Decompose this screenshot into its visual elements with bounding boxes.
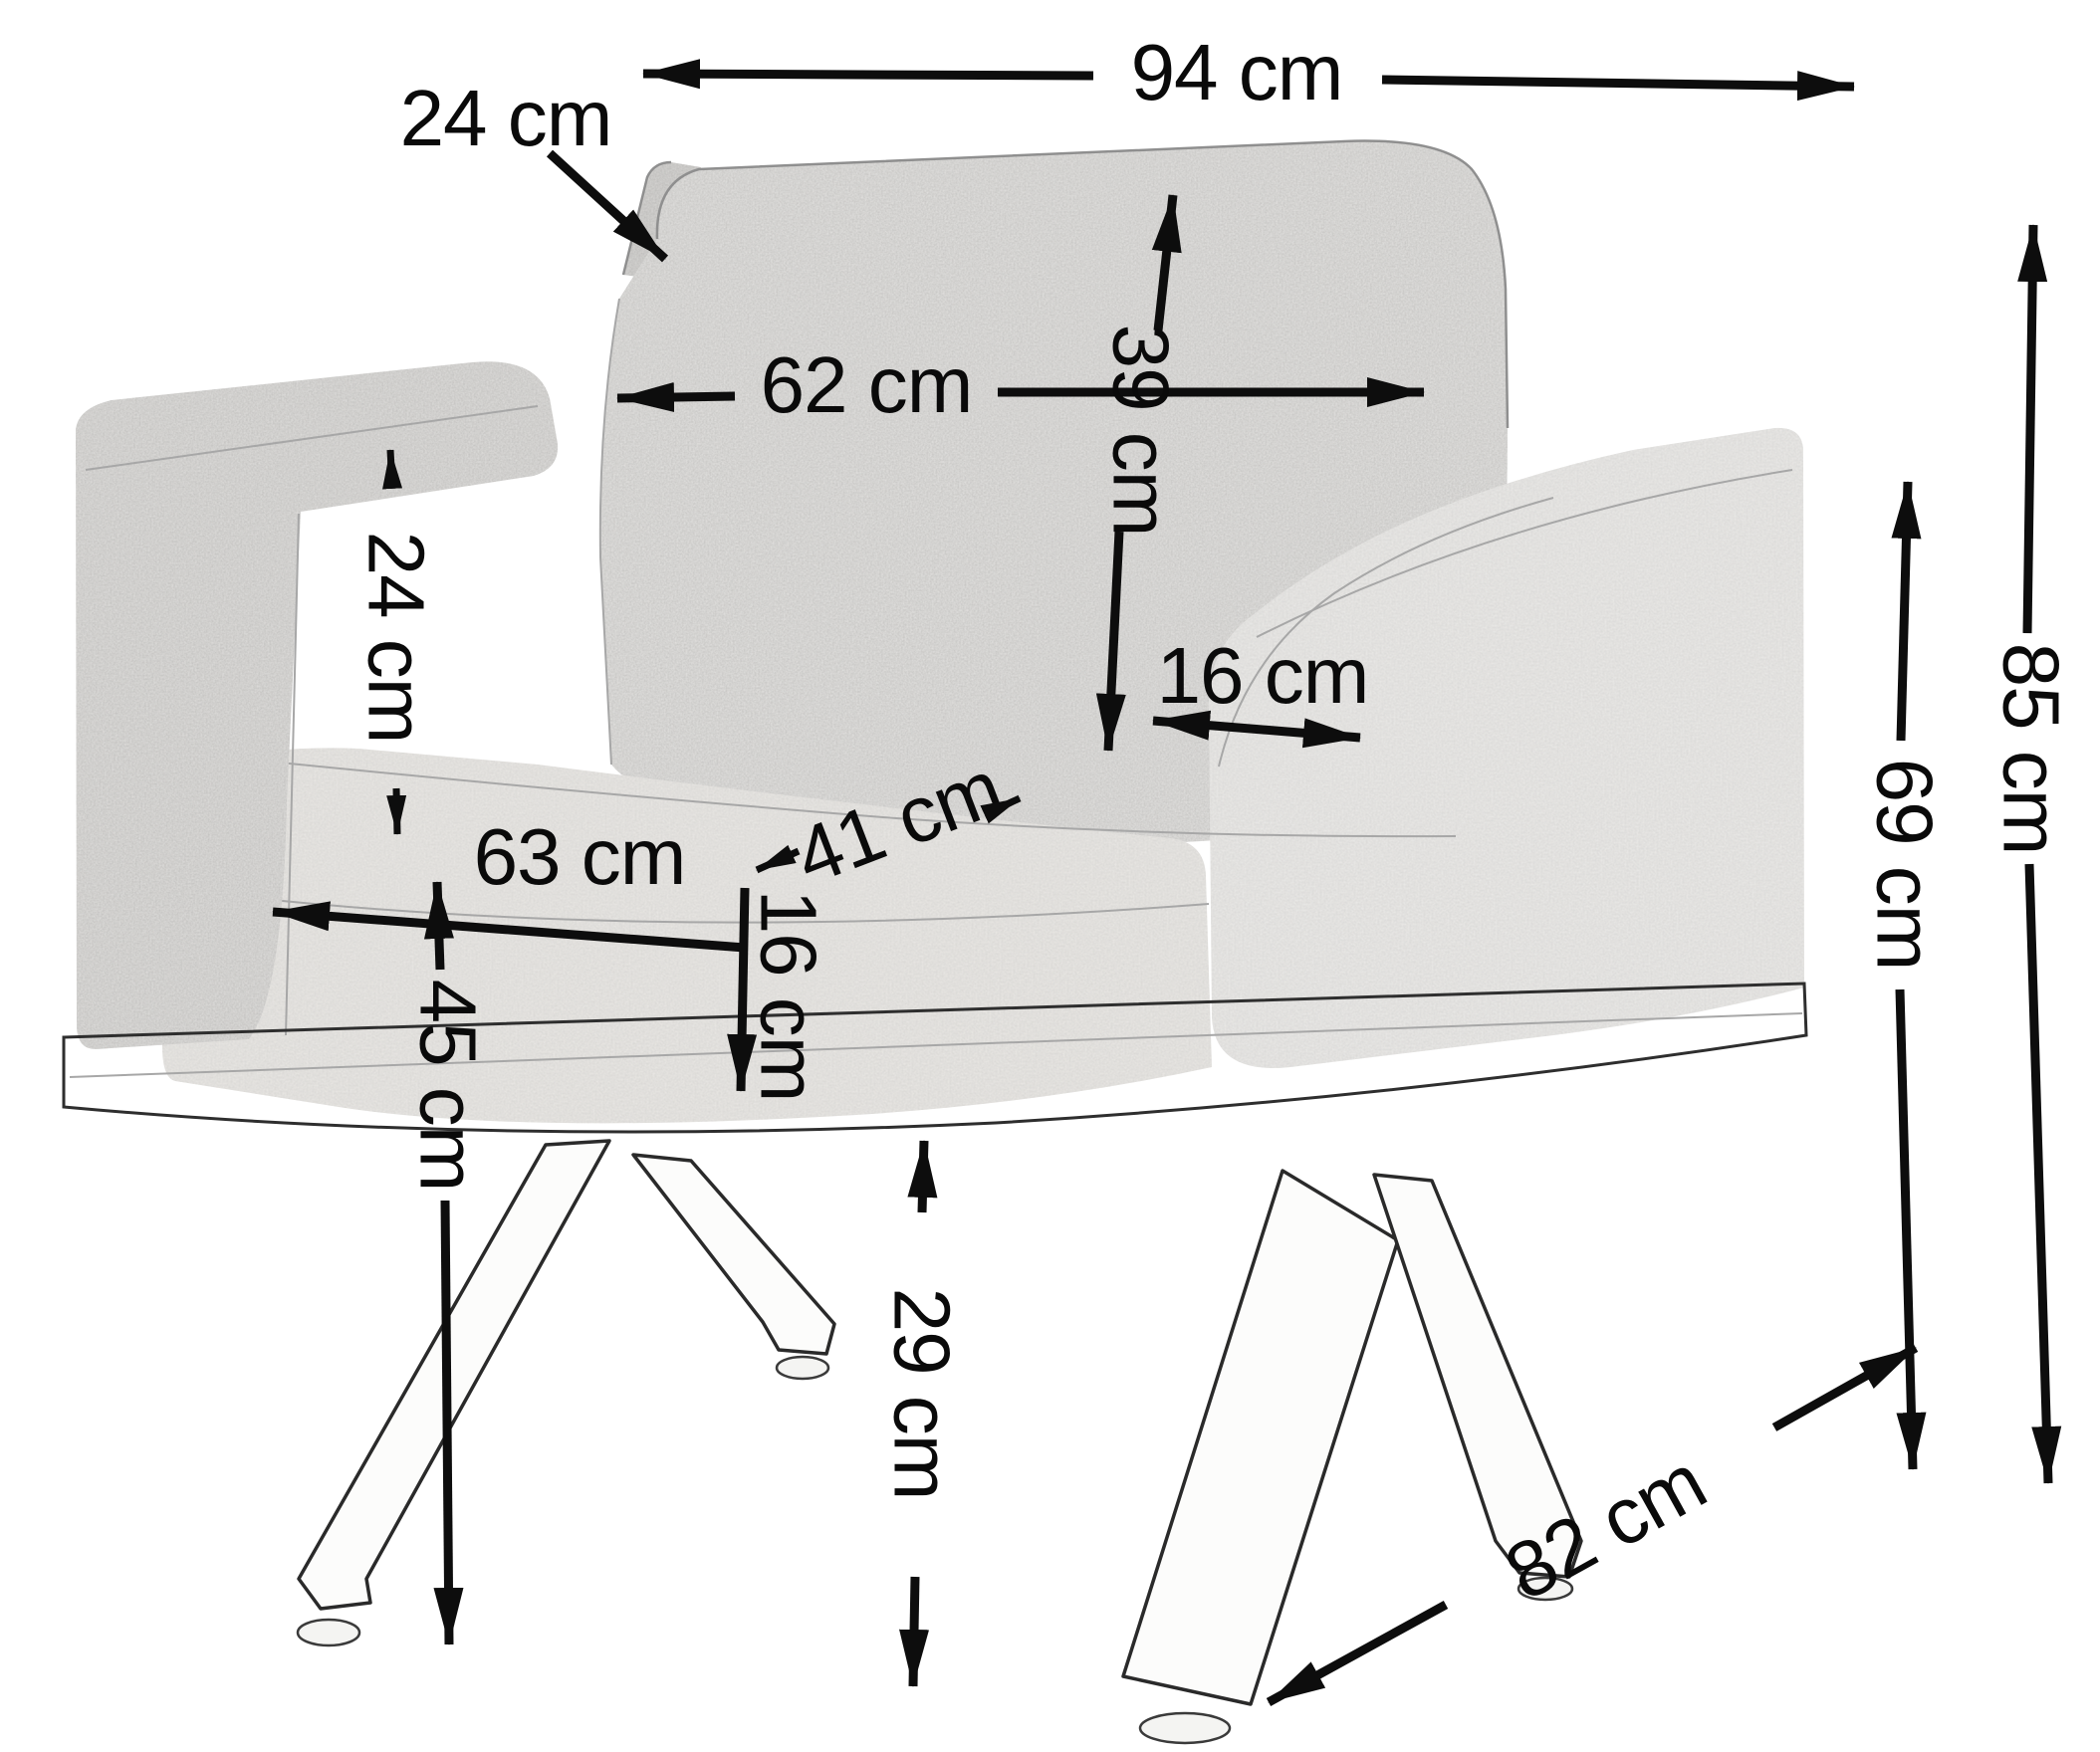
front-right-leg	[1123, 1171, 1398, 1704]
front-left-leg	[299, 1141, 609, 1609]
dim-armrest-height-label: 69 cm	[1861, 759, 1950, 971]
dim-armrest-top-depth-label: 24 cm	[352, 532, 441, 744]
dim-seat-cushion-thickness-label: 16 cm	[745, 890, 833, 1102]
dim-armrest-width-label: 16 cm	[1157, 631, 1369, 720]
dim-overall-width-label: 94 cm	[1131, 28, 1343, 116]
dim-back-pillow-thickness: 24 cm	[400, 74, 665, 259]
dim-back-pillow-height-label: 39 cm	[1097, 325, 1186, 537]
armchair-dimension-diagram: 94 cm 24 cm 62 cm 39 cm 24 cm 16 cm	[0, 0, 2100, 1752]
front-left-foot-pad	[298, 1620, 359, 1645]
dim-overall-height-label: 85 cm	[1987, 643, 2076, 855]
dim-base-clearance-height: 29 cm	[878, 1141, 967, 1686]
back-left-leg	[633, 1155, 834, 1354]
dim-overall-height: 85 cm	[1987, 225, 2076, 1483]
dim-back-pillow-width-label: 62 cm	[761, 340, 973, 429]
dim-overall-depth: 82 cm	[1269, 1348, 1916, 1702]
dim-armrest-height: 69 cm	[1861, 482, 1950, 1469]
front-right-foot-pad	[1140, 1713, 1230, 1743]
dim-base-clearance-height-label: 29 cm	[878, 1288, 967, 1500]
dim-seat-width-label: 63 cm	[474, 812, 686, 901]
dim-seat-height-label: 45 cm	[404, 980, 493, 1192]
dim-seat-cushion-thickness: 16 cm	[741, 888, 833, 1101]
dim-overall-width: 94 cm	[643, 28, 1854, 116]
dim-back-pillow-thickness-label: 24 cm	[400, 74, 612, 162]
back-left-foot-pad	[777, 1357, 828, 1379]
